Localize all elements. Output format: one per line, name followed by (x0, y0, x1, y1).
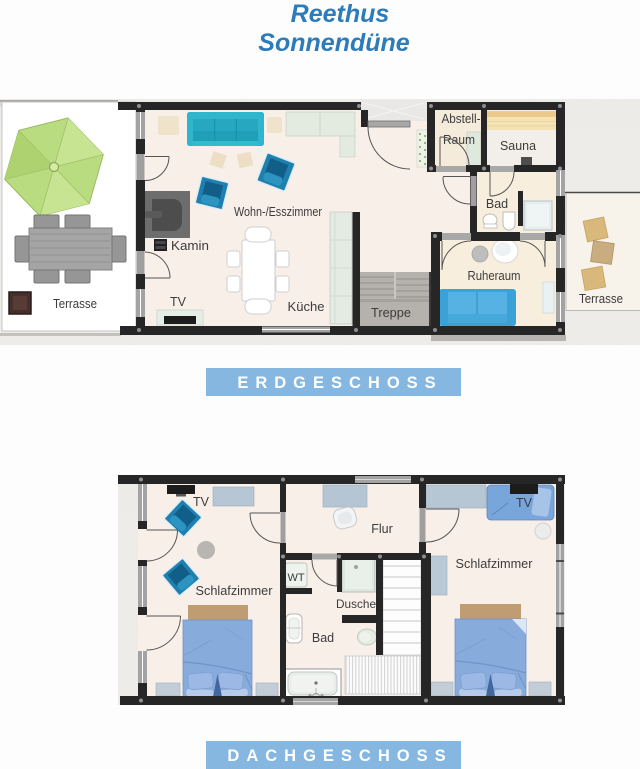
svg-text:TV: TV (170, 295, 187, 309)
svg-text:WT: WT (287, 572, 304, 584)
svg-text:TV: TV (193, 495, 210, 509)
svg-text:Terrasse: Terrasse (579, 291, 623, 306)
svg-text:Flur: Flur (371, 522, 393, 536)
svg-text:Wohn-/Esszimmer: Wohn-/Esszimmer (234, 205, 322, 219)
svg-text:Kamin: Kamin (171, 239, 209, 253)
svg-text:Dusche: Dusche (336, 597, 376, 611)
svg-text:Reethus: Reethus (291, 0, 390, 28)
svg-text:Sonnendüne: Sonnendüne (258, 29, 409, 57)
svg-text:ERDGESCHOSS: ERDGESCHOSS (237, 374, 442, 392)
svg-text:Schlafzimmer: Schlafzimmer (456, 557, 533, 571)
svg-text:Terrasse: Terrasse (53, 296, 97, 311)
svg-text:TV: TV (516, 496, 533, 510)
svg-text:Treppe: Treppe (371, 306, 411, 320)
svg-text:Raum: Raum (443, 133, 475, 147)
svg-text:Bad: Bad (312, 631, 334, 645)
svg-text:Abstell-: Abstell- (442, 112, 481, 126)
svg-text:Küche: Küche (288, 300, 325, 314)
svg-text:Bad: Bad (486, 197, 508, 211)
svg-text:Schlafzimmer: Schlafzimmer (196, 584, 273, 598)
svg-text:DACHGESCHOSS: DACHGESCHOSS (227, 747, 452, 765)
svg-text:Ruheraum: Ruheraum (468, 269, 521, 283)
svg-text:Sauna: Sauna (500, 139, 536, 153)
